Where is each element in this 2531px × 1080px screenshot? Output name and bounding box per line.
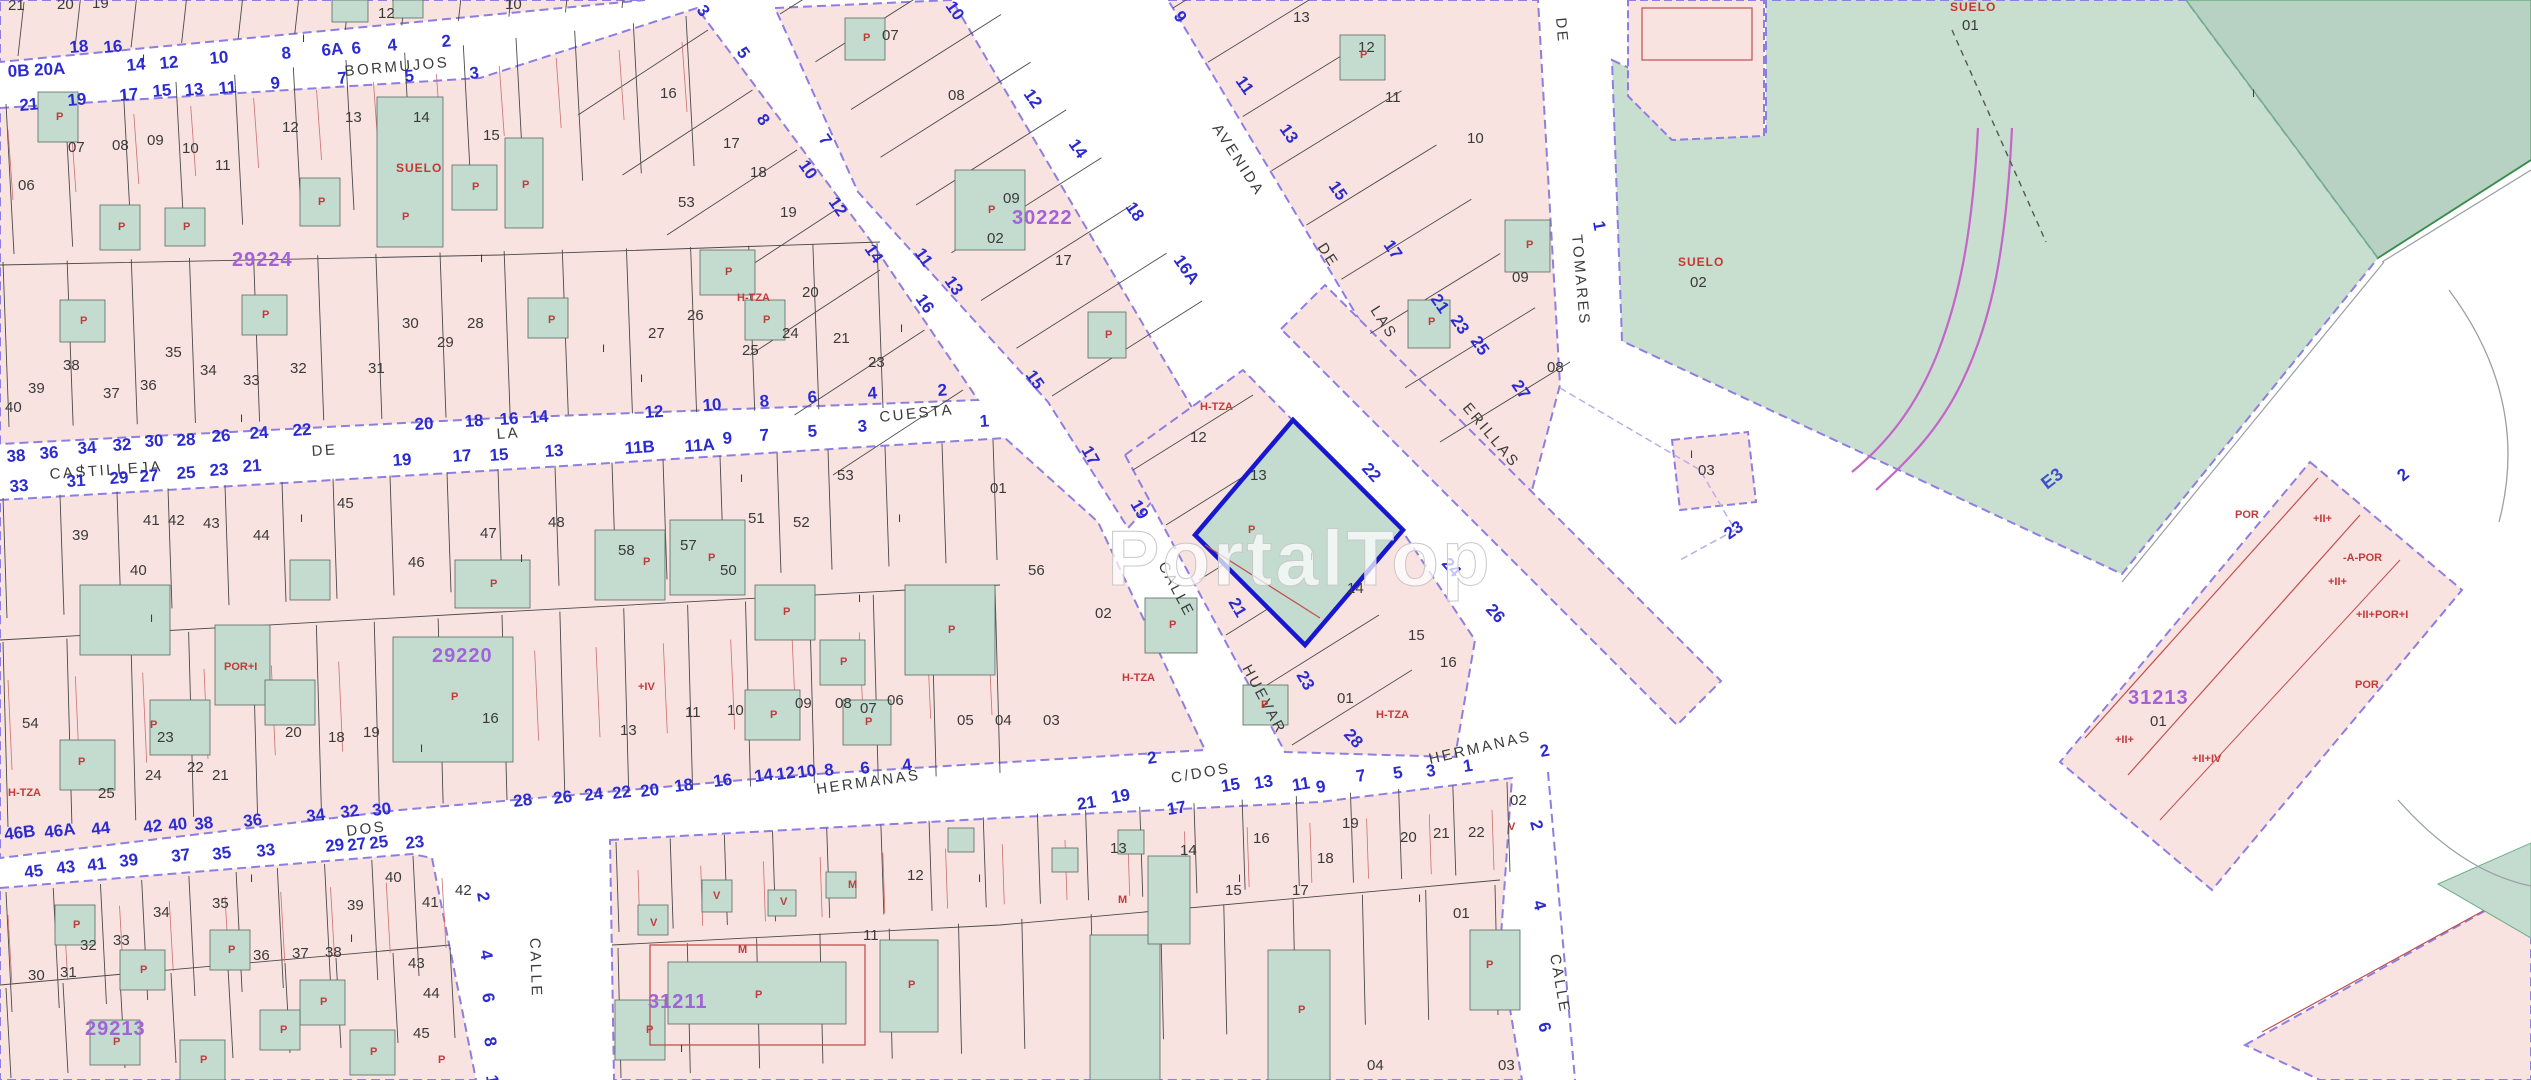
street-number: 20 <box>414 414 434 434</box>
construction-mark: P <box>783 606 790 618</box>
parcel-number: 34 <box>153 904 170 921</box>
street-number: 26 <box>552 787 573 808</box>
street-number: 12 <box>775 763 796 784</box>
parcel-number: 20 <box>1400 829 1417 846</box>
floor-mark: I <box>640 373 643 385</box>
construction-mark: P <box>643 556 650 568</box>
street-number: 8 <box>281 43 292 63</box>
parcel-number: 12 <box>907 867 924 884</box>
parcel-number: 19 <box>92 0 109 12</box>
floor-mark: I <box>1690 449 1693 461</box>
green-parcel <box>393 0 423 18</box>
floor-mark: I <box>898 513 901 525</box>
construction-mark: P <box>908 979 915 991</box>
green-parcel <box>332 0 368 22</box>
parcel-number: 16 <box>1253 830 1270 847</box>
parcel-number: 10 <box>1467 130 1484 147</box>
floor-mark: I <box>240 413 243 425</box>
parcel-number: 53 <box>678 194 695 211</box>
construction-mark: P <box>1261 699 1268 711</box>
construction-mark: P <box>548 314 555 326</box>
street-number: 18 <box>464 411 484 431</box>
street-number: 17 <box>119 84 140 105</box>
parcel-number: 03 <box>1698 462 1715 479</box>
parcel-number: 39 <box>347 897 364 914</box>
street-number: 24 <box>583 784 605 805</box>
parcel-number: 25 <box>98 785 115 802</box>
parcel-number: 11 <box>1385 89 1401 106</box>
street-number: 21 <box>19 94 40 115</box>
construction-mark: P <box>80 315 87 327</box>
parcel-number: 34 <box>200 362 217 379</box>
parcel-number: 23 <box>157 729 174 746</box>
parcel-number: 50 <box>720 562 737 579</box>
construction-label: +IV <box>638 681 655 693</box>
parcel-number: 09 <box>1512 269 1529 286</box>
parcel-number: 01 <box>1962 17 1979 34</box>
street-number: 16 <box>103 36 124 57</box>
construction-mark: P <box>228 944 235 956</box>
parcel-number: 02 <box>1690 274 1707 291</box>
street-number: 32 <box>112 435 132 455</box>
parcel-number: 56 <box>1028 562 1045 579</box>
parcel-number: 28 <box>467 315 484 332</box>
street-number: 46B <box>3 821 36 844</box>
street-number: 38 <box>193 813 214 834</box>
parcel-number: 01 <box>1337 690 1354 707</box>
parcel-number: 05 <box>957 712 974 729</box>
construction-label: +II+ <box>2313 513 2332 525</box>
parcel-number: 24 <box>782 325 799 342</box>
parcel-number: 22 <box>187 759 204 776</box>
parcel-number: 43 <box>203 515 220 532</box>
street-number: 32 <box>339 801 360 822</box>
construction-mark: M <box>848 879 857 891</box>
construction-mark: V <box>780 896 788 908</box>
parcel-number: 19 <box>1342 815 1359 832</box>
parcel-number: 01 <box>990 480 1007 497</box>
street-number: 3 <box>469 63 480 83</box>
parcel-number: 17 <box>1292 882 1309 899</box>
parcel-number: 18 <box>750 164 767 181</box>
parcel-number: 31 <box>60 964 77 981</box>
construction-mark: V <box>1508 821 1516 833</box>
construction-mark: P <box>646 1024 653 1036</box>
parcel-number: 29 <box>437 334 454 351</box>
parcel-number: 18 <box>1317 850 1334 867</box>
parcel-number: 44 <box>253 527 270 544</box>
parcel-number: 09 <box>1003 190 1020 207</box>
street-number: 27 <box>346 834 367 855</box>
parcel-number: 10 <box>182 140 199 157</box>
parcel-number: 10 <box>505 0 522 13</box>
parcel-number: 16 <box>1440 654 1457 671</box>
street-number: 36 <box>39 443 59 463</box>
parcel-number: 02 <box>1095 605 1112 622</box>
parcel-number: 37 <box>292 945 309 962</box>
parcel-number: 12 <box>378 5 395 22</box>
construction-mark: P <box>840 656 847 668</box>
parcel-number: 13 <box>1250 467 1267 484</box>
construction-mark: P <box>1169 619 1176 631</box>
parcel-number: 15 <box>483 127 500 144</box>
parcel-number: 17 <box>723 135 740 152</box>
floor-mark: I <box>1238 873 1241 885</box>
street-number: 5 <box>404 66 415 86</box>
suelo-label: SUELO <box>1678 255 1724 269</box>
floor-mark: I <box>80 463 83 475</box>
floor-mark: I <box>420 743 423 755</box>
floor-mark: I <box>602 343 605 355</box>
construction-label: -A-POR <box>2343 552 2382 564</box>
construction-label: H-TZA <box>1200 401 1233 413</box>
construction-mark: P <box>490 578 497 590</box>
street-number: 31 <box>66 471 86 491</box>
parcel-number: 39 <box>72 527 89 544</box>
parcel-number: 44 <box>423 985 440 1002</box>
street-number: 11 <box>218 77 238 97</box>
parcel-number: 19 <box>363 724 380 741</box>
construction-mark: P <box>402 211 409 223</box>
construction-mark: P <box>150 719 157 731</box>
street-number: 29 <box>324 835 345 856</box>
street-number: 15 <box>152 80 173 101</box>
street-name: DE <box>1552 17 1571 44</box>
parcel-number: 21 <box>212 767 229 784</box>
construction-label: +II+POR+I <box>2356 609 2408 621</box>
street-number: 14 <box>753 765 775 786</box>
green-parcel <box>1148 856 1190 944</box>
street-number: 25 <box>368 832 389 853</box>
parcel-number: 13 <box>1110 840 1127 857</box>
street-number: 6 <box>351 38 362 58</box>
street-number: 19 <box>392 450 412 470</box>
construction-mark: P <box>320 996 327 1008</box>
street-number: 38 <box>6 446 26 466</box>
construction-mark: P <box>113 1036 120 1048</box>
parcel-number: 12 <box>282 119 299 136</box>
street-number: 16 <box>499 409 519 429</box>
street-number: 6A <box>321 39 344 60</box>
street-number: 34 <box>305 805 327 826</box>
street-number: 40 <box>167 814 188 835</box>
street-number: 2 <box>937 380 948 400</box>
parcel-number: 52 <box>793 514 810 531</box>
street-number: 43 <box>55 857 76 878</box>
street-number: 13 <box>184 79 205 100</box>
street-number: 33 <box>9 476 29 496</box>
construction-mark: P <box>56 111 63 123</box>
street-number: 0B 20A <box>7 59 66 81</box>
construction-mark: P <box>438 1054 445 1066</box>
street-number: 17 <box>452 446 472 466</box>
parcel-number: 09 <box>147 132 164 149</box>
street-number: 30 <box>371 799 392 820</box>
parcel-number: 01 <box>2150 713 2167 730</box>
suelo-label: SUELO <box>396 161 442 175</box>
construction-mark: P <box>183 221 190 233</box>
construction-label: H-TZA <box>737 292 770 304</box>
street-number: 34 <box>77 438 98 458</box>
parcel-number: 04 <box>995 712 1012 729</box>
construction-mark: V <box>650 917 658 929</box>
parcel-number: 09 <box>795 695 812 712</box>
construction-mark: P <box>140 964 147 976</box>
street-number: 24 <box>249 423 270 443</box>
parcel-number: 16 <box>660 85 677 102</box>
parcel-number: 20 <box>57 0 74 13</box>
parcel-number: 11 <box>863 927 879 944</box>
street-number: 18 <box>69 36 90 57</box>
parcel-number: 10 <box>727 702 744 719</box>
street-number: 4 <box>867 383 878 403</box>
construction-mark: P <box>1360 49 1367 61</box>
parcel-number: 08 <box>112 137 129 154</box>
parcel-number: 25 <box>742 342 759 359</box>
construction-mark: P <box>1105 329 1112 341</box>
street-number: 41 <box>86 854 107 875</box>
green-parcel <box>290 560 330 600</box>
street-number: 46A <box>43 819 76 842</box>
construction-label: POR <box>2235 509 2259 521</box>
parcel-number: 13 <box>345 109 362 126</box>
green-parcel <box>265 680 315 725</box>
street-number: 28 <box>176 430 196 450</box>
parcel-number: 30 <box>402 315 419 332</box>
green-parcel <box>150 700 210 755</box>
construction-mark: P <box>1428 316 1435 328</box>
street-number: 15 <box>489 445 509 465</box>
parcel-number: 32 <box>290 360 307 377</box>
parcel-number: 03 <box>1498 1057 1515 1074</box>
parcel-number: 20 <box>285 724 302 741</box>
parcel-number: 35 <box>212 895 229 912</box>
construction-mark: P <box>522 179 529 191</box>
construction-mark: P <box>863 32 870 44</box>
construction-mark: P <box>451 691 458 703</box>
parcel-number: 40 <box>5 399 22 416</box>
floor-mark: I <box>520 553 523 565</box>
street-number: 11B <box>624 437 656 458</box>
construction-label: +II+IV <box>2192 753 2222 765</box>
parcel-number: 38 <box>63 357 80 374</box>
parcel-number: 14 <box>1180 842 1197 859</box>
street-number: 16 <box>712 770 733 791</box>
parcel-number: 47 <box>480 525 497 542</box>
street-number: 29 <box>109 468 129 488</box>
street-number: 39 <box>118 850 139 871</box>
construction-mark: P <box>200 1054 207 1066</box>
construction-mark: P <box>948 624 955 636</box>
street-number: 10 <box>702 395 722 415</box>
floor-mark: I <box>858 593 861 605</box>
construction-label: POR <box>2355 679 2379 691</box>
street-number: 37 <box>170 845 191 866</box>
parcel-number: 51 <box>748 510 765 527</box>
block-code: 30222 <box>1012 207 1073 229</box>
construction-mark: P <box>370 1046 377 1058</box>
construction-mark: P <box>280 1024 287 1036</box>
parcel-number: 38 <box>325 944 342 961</box>
street-number: 11A <box>684 435 716 456</box>
construction-label: +II+ <box>2328 576 2347 588</box>
construction-mark: P <box>318 196 325 208</box>
construction-mark: P <box>73 919 80 931</box>
construction-label: H-TZA <box>8 787 41 799</box>
parcel-number: 06 <box>887 692 904 709</box>
construction-label: +II+ <box>2115 734 2134 746</box>
parcel-number: 19 <box>780 204 797 221</box>
street-number: 3 <box>857 416 868 436</box>
construction-mark: P <box>725 266 732 278</box>
green-parcel <box>595 530 665 600</box>
construction-label: H-TZA <box>1122 672 1155 684</box>
street-number: 7 <box>759 425 770 445</box>
street-number: 21 <box>242 456 262 476</box>
floor-mark: I <box>680 1043 683 1055</box>
street-number: 6 <box>807 387 818 407</box>
street-number: 13 <box>1253 771 1275 793</box>
construction-mark: P <box>472 181 479 193</box>
parcel-number: 48 <box>548 514 565 531</box>
construction-mark: P <box>763 314 770 326</box>
block-code: 31211 <box>648 991 708 1013</box>
parcel-number: 08 <box>1547 359 1564 376</box>
parcel-number: 41 <box>422 894 439 911</box>
watermark: PortalTop <box>1107 514 1492 602</box>
parcel-number: 23 <box>868 354 885 371</box>
construction-mark: V <box>713 890 721 902</box>
street-number: 9 <box>270 73 281 93</box>
street-number: 12 <box>644 402 664 422</box>
floor-mark: I <box>300 513 303 525</box>
parcel-number: 36 <box>253 947 270 964</box>
block-code: 29220 <box>432 645 493 667</box>
parcel-number: 31 <box>368 360 385 377</box>
construction-mark: P <box>78 756 85 768</box>
parcel-number: 58 <box>618 542 635 559</box>
parcel-number: 40 <box>385 869 402 886</box>
street-number: 28 <box>512 790 533 811</box>
parcel-number: 46 <box>408 554 425 571</box>
parcel-number: 07 <box>860 700 877 717</box>
floor-mark: I <box>900 323 903 335</box>
parcel-number: 43 <box>408 955 425 972</box>
street-number: 10 <box>796 761 817 782</box>
street-number: 9 <box>722 428 733 448</box>
floor-mark: I <box>978 873 981 885</box>
parcel-number: 53 <box>837 467 854 484</box>
parcel-number: 21 <box>8 0 25 14</box>
street-number: 2 <box>441 31 452 51</box>
parcel-number: 14 <box>413 109 430 126</box>
street-number: 19 <box>67 89 88 110</box>
construction-mark: P <box>262 309 269 321</box>
parcel-number: 11 <box>215 157 231 174</box>
street-number: 5 <box>807 421 818 441</box>
green-parcel <box>80 585 170 655</box>
street-number: 27 <box>139 466 159 486</box>
street-number: 25 <box>176 463 196 483</box>
cadastral-map[interactable]: BORMUJOSCASTILLEJADELACUESTACALLEHUEVARA… <box>0 0 2531 1080</box>
construction-mark: P <box>865 716 872 728</box>
parcel-number: 36 <box>140 377 157 394</box>
parcel-number: 21 <box>1433 825 1450 842</box>
parcel-number: 39 <box>28 380 45 397</box>
construction-label: H-TZA <box>1376 709 1409 721</box>
parcel-number: 13 <box>620 722 637 739</box>
street-number: 17 <box>1166 797 1188 819</box>
floor-mark: I <box>350 933 353 945</box>
parcel-number: 13 <box>1293 9 1310 26</box>
construction-mark: P <box>708 552 715 564</box>
street-number: 10 <box>209 47 230 68</box>
green-parcel <box>60 740 115 790</box>
street-number: 22 <box>292 420 312 440</box>
parcel-number: 32 <box>80 937 97 954</box>
parcel-number: 54 <box>22 715 39 732</box>
parcel-number: 42 <box>455 882 472 899</box>
street-number: 11 <box>1291 773 1312 795</box>
parcel-number: 20 <box>802 284 819 301</box>
cadastral-map-viewport[interactable]: BORMUJOSCASTILLEJADELACUESTACALLEHUEVARA… <box>0 0 2531 1080</box>
parcel-number: 15 <box>1408 627 1425 644</box>
street-number: 42 <box>142 816 163 837</box>
street-name: CALLE <box>526 938 545 999</box>
street-number: 45 <box>23 861 44 882</box>
construction-mark: M <box>738 944 747 956</box>
parcel-number: 18 <box>328 729 345 746</box>
floor-mark: I <box>250 873 253 885</box>
green-parcel <box>948 828 974 852</box>
street-number: 12 <box>159 52 180 73</box>
street-number: 26 <box>211 426 231 446</box>
floor-mark: I <box>1418 893 1421 905</box>
street-number: 8 <box>759 391 770 411</box>
parcel-number: 35 <box>165 344 182 361</box>
street-number: 36 <box>242 810 263 831</box>
parcel-number: 45 <box>337 495 354 512</box>
green-parcel <box>1470 930 1520 1010</box>
construction-mark: P <box>988 204 995 216</box>
street-number: 33 <box>255 840 276 861</box>
floor-mark: I <box>150 613 153 625</box>
parcel-number: 01 <box>1453 905 1470 922</box>
construction-label: POR+I <box>224 661 257 673</box>
parcel-number: 08 <box>948 87 965 104</box>
construction-mark: P <box>118 221 125 233</box>
parcel-number: 08 <box>835 695 852 712</box>
street-number: 19 <box>1110 785 1132 807</box>
parcel-number: 17 <box>1055 252 1072 269</box>
parcel-number: 16 <box>482 710 499 727</box>
block-code: 31213 <box>2128 687 2189 709</box>
green-parcel <box>1090 935 1160 1080</box>
parcel-number: 04 <box>1367 1057 1384 1074</box>
parcel-number: 33 <box>243 372 260 389</box>
parcel-number: 42 <box>168 512 185 529</box>
construction-mark: P <box>1526 239 1533 251</box>
street-number: 23 <box>404 832 425 853</box>
parcel-number: 07 <box>882 27 899 44</box>
parcel-number: 02 <box>1510 792 1527 809</box>
suelo-label: SUELO <box>1950 0 1996 14</box>
street-number: 15 <box>1220 774 1242 796</box>
parcel-number: 27 <box>648 325 665 342</box>
parcel-number: 02 <box>987 230 1004 247</box>
parcel-number: 45 <box>413 1025 430 1042</box>
floor-mark: I <box>740 473 743 485</box>
